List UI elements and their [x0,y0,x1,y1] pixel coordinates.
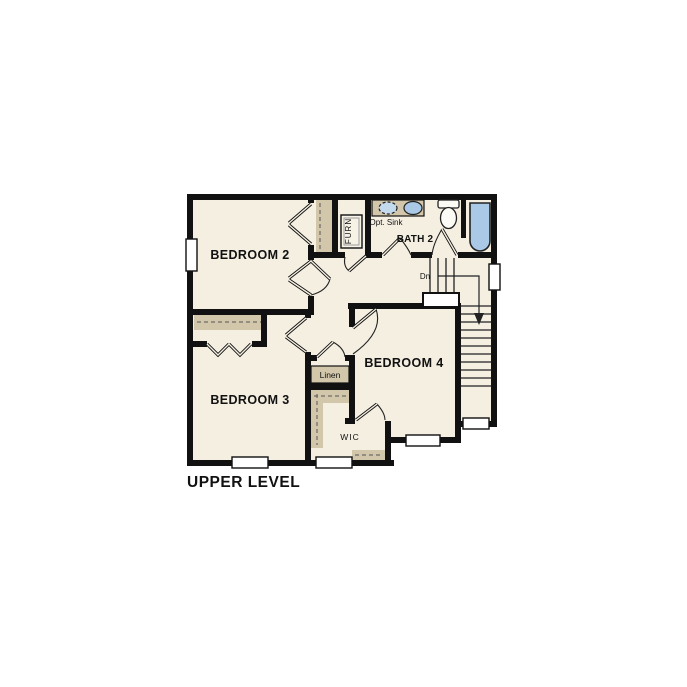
wall-segment [187,460,394,466]
wall-segment [411,252,432,258]
wall-segment [305,352,311,466]
wall-segment [455,306,461,437]
wall-segment [305,383,352,390]
wall-segment [345,355,355,361]
wall-segment [461,200,466,238]
optional-sink-icon [379,202,397,214]
room-label-bedroom2: BEDROOM 2 [210,248,289,262]
window-bedroom2 [186,239,197,271]
wall-segment [332,194,338,258]
wall-segment [345,418,355,424]
sink-icon [404,202,422,215]
room-label-bedroom3: BEDROOM 3 [210,393,289,407]
toilet-bowl [441,208,457,229]
wall-segment [349,309,355,327]
label-furnace: FURN [344,218,353,244]
wall-segment [252,341,267,347]
wall-segment [491,194,497,427]
wall-segment [458,252,497,258]
window-wic [316,457,352,468]
plan-title: UPPER LEVEL [187,474,300,491]
label-opt-sink: Opt. Sink [370,218,404,227]
wall-segment [365,252,382,258]
window-stairwell [489,264,500,290]
toilet-tank [438,200,459,208]
window-bedroom4 [406,435,440,446]
wall-segment [187,341,207,347]
wall-segment [305,315,311,318]
label-stairs-down: Dn [420,272,430,281]
wall-segment [187,194,497,200]
wall-segment [308,296,314,315]
wall-segment [187,309,311,315]
room-label-bedroom4: BEDROOM 4 [364,356,443,370]
floor-plan-page: BEDROOM 2 BEDROOM 3 BEDROOM 4 BATH 2 Opt… [0,0,687,687]
wall-segment [311,252,345,258]
wall-segment [187,194,193,466]
wall-segment [305,355,317,361]
room-label-bath2: BATH 2 [397,234,434,245]
label-linen: Linen [320,370,341,380]
bathtub-icon [470,203,490,251]
label-wic: WIC [340,432,360,442]
bedroom2-closet-shelf [316,200,333,252]
wall-segment [385,421,391,466]
window-stairs-bottom [463,418,489,429]
window-bedroom3 [232,457,268,468]
stair-landing [423,293,459,307]
wall-segment [308,194,314,203]
floor-plan: BEDROOM 2 BEDROOM 3 BEDROOM 4 BATH 2 Opt… [0,0,687,687]
